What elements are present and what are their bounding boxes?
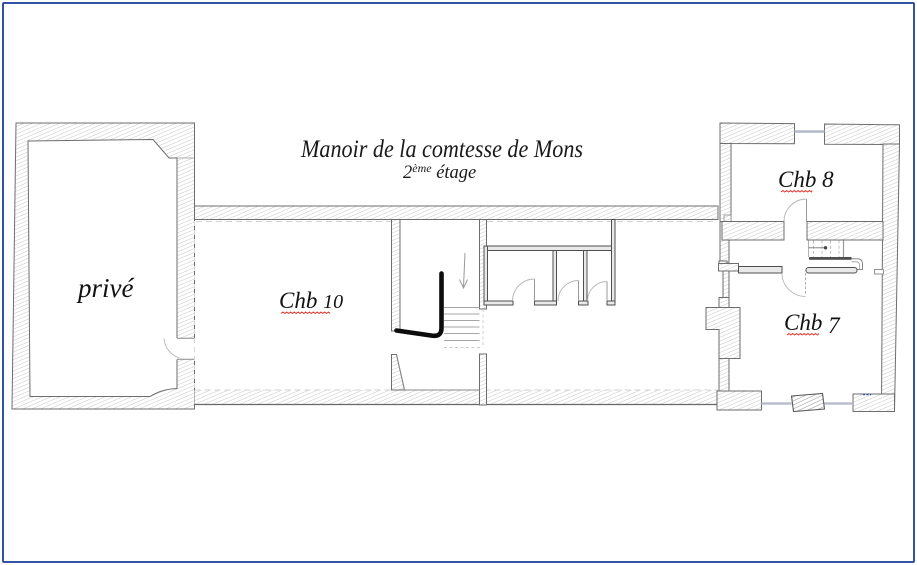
- svg-text:Chb 10: Chb 10: [279, 288, 343, 313]
- svg-text:privé: privé: [76, 273, 134, 303]
- svg-text:Manoir de la comtesse de Mons: Manoir de la comtesse de Mons: [300, 136, 583, 163]
- svg-text:Chb 8: Chb 8: [778, 167, 834, 192]
